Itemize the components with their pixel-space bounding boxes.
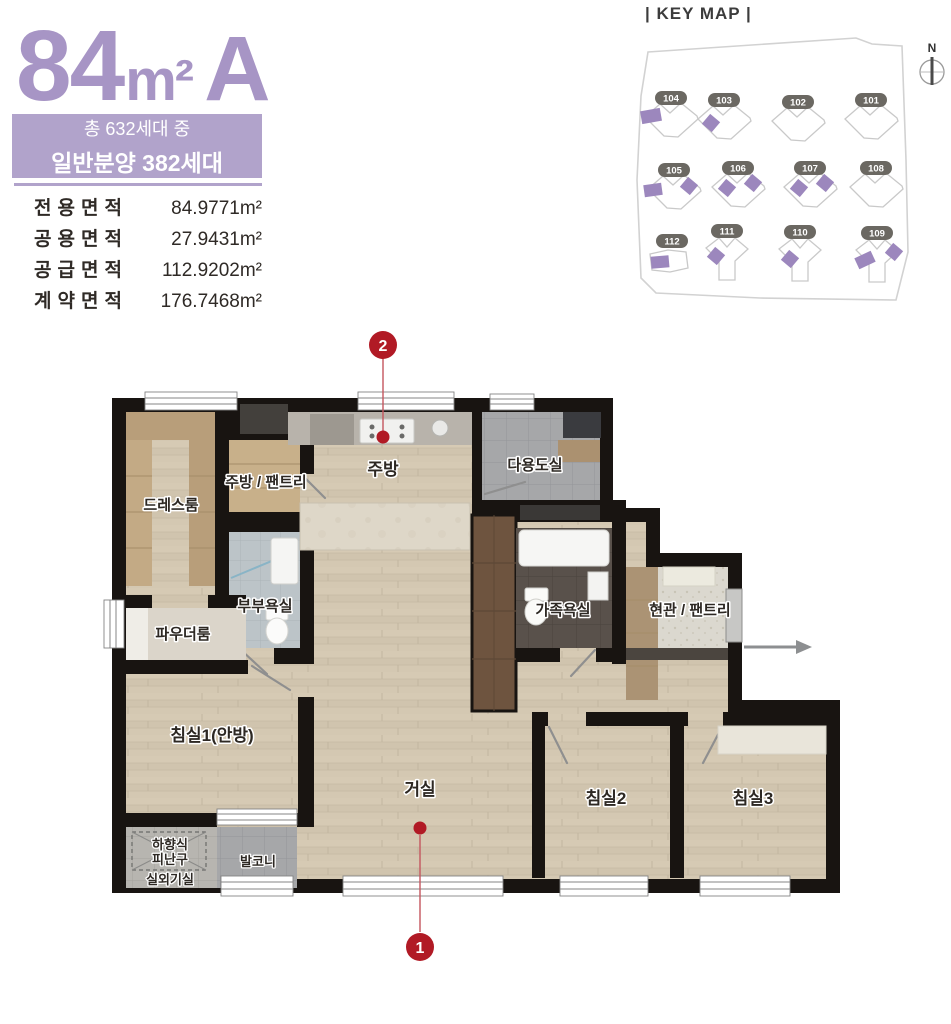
svg-text:107: 107	[802, 164, 818, 175]
room-label-escape-hatch-1: 하향식	[152, 837, 188, 852]
compass-north-label: N	[928, 41, 937, 55]
svg-text:109: 109	[869, 229, 885, 240]
room-label-bedroom3: 침실3	[733, 788, 774, 808]
bedroom3-closet	[718, 726, 826, 754]
key-map: | KEY MAP | N 104 103	[637, 4, 944, 300]
room-label-living-room: 거실	[404, 780, 435, 799]
family-bathroom	[516, 528, 612, 648]
svg-text:1: 1	[416, 940, 425, 957]
svg-text:2: 2	[379, 338, 388, 355]
svg-text:106: 106	[730, 164, 746, 175]
room-label-balcony: 발코니	[240, 854, 276, 869]
room-label-family-bathroom: 가족욕실	[535, 602, 590, 619]
compass-icon: N	[920, 41, 944, 85]
room-label-master-bathroom: 부부욕실	[237, 598, 292, 615]
svg-text:112: 112	[664, 237, 679, 248]
room-label-entrance-pantry: 현관 / 팬트리	[649, 602, 731, 619]
floor-plan: 드레스룸 주방 / 팬트리 주방 다용도실 파우더룸 부부욕실 가족욕실 현관 …	[104, 392, 840, 896]
marker-2-dot	[377, 431, 390, 444]
svg-text:101: 101	[863, 96, 880, 107]
room-label-escape-hatch-2: 피난구	[152, 852, 188, 867]
room-label-dress-room: 드레스룸	[143, 497, 198, 514]
svg-text:108: 108	[868, 164, 884, 175]
room-label-outdoor-unit: 실외기실	[146, 872, 194, 887]
room-label-kitchen: 주방	[367, 460, 399, 479]
keymap-title: | KEY MAP |	[645, 4, 752, 23]
marker-1-dot	[414, 822, 427, 835]
svg-text:105: 105	[666, 166, 683, 177]
floorplan-page: 84 m² A 총 632세대 중 일반분양 382세대 전용면적 84.977…	[0, 0, 951, 1024]
svg-text:110: 110	[792, 228, 807, 239]
plan-canvas: | KEY MAP | N 104 103	[0, 0, 951, 1024]
room-label-kitchen-pantry: 주방 / 팬트리	[225, 473, 307, 491]
room-label-bedroom1: 침실1(안방)	[170, 725, 253, 745]
svg-text:103: 103	[716, 96, 732, 107]
svg-text:102: 102	[790, 98, 806, 109]
svg-text:104: 104	[663, 94, 680, 105]
utility-room	[482, 412, 601, 500]
room-label-utility-room: 다용도실	[507, 457, 562, 474]
room-label-bedroom2: 침실2	[586, 788, 627, 808]
room-label-powder-room: 파우더룸	[155, 626, 210, 643]
svg-text:111: 111	[720, 227, 736, 238]
hall-wardrobe	[472, 515, 516, 711]
